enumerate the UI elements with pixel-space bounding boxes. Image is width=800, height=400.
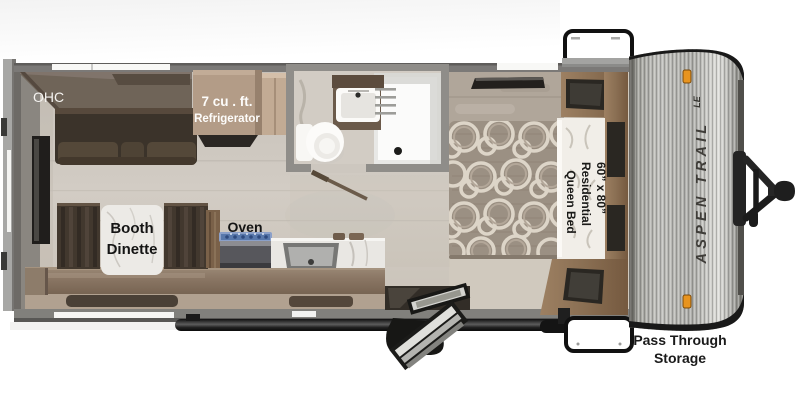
svg-text:60” x 80”: 60” x 80” xyxy=(594,162,608,214)
svg-text:Refrigerator: Refrigerator xyxy=(194,113,260,125)
svg-text:Residential: Residential xyxy=(579,162,593,226)
svg-text:Storage: Storage xyxy=(654,350,706,366)
svg-text:Dinette: Dinette xyxy=(107,241,158,258)
svg-text:7 cu . ft.: 7 cu . ft. xyxy=(201,94,252,109)
svg-text:LE: LE xyxy=(692,95,702,107)
svg-text:ASPEN TRAIL: ASPEN TRAIL xyxy=(694,121,710,265)
svg-text:Queen Bed: Queen Bed xyxy=(564,170,578,233)
svg-text:Booth: Booth xyxy=(110,220,153,237)
svg-text:Pass Through: Pass Through xyxy=(633,332,726,348)
svg-text:OHC: OHC xyxy=(33,89,64,105)
